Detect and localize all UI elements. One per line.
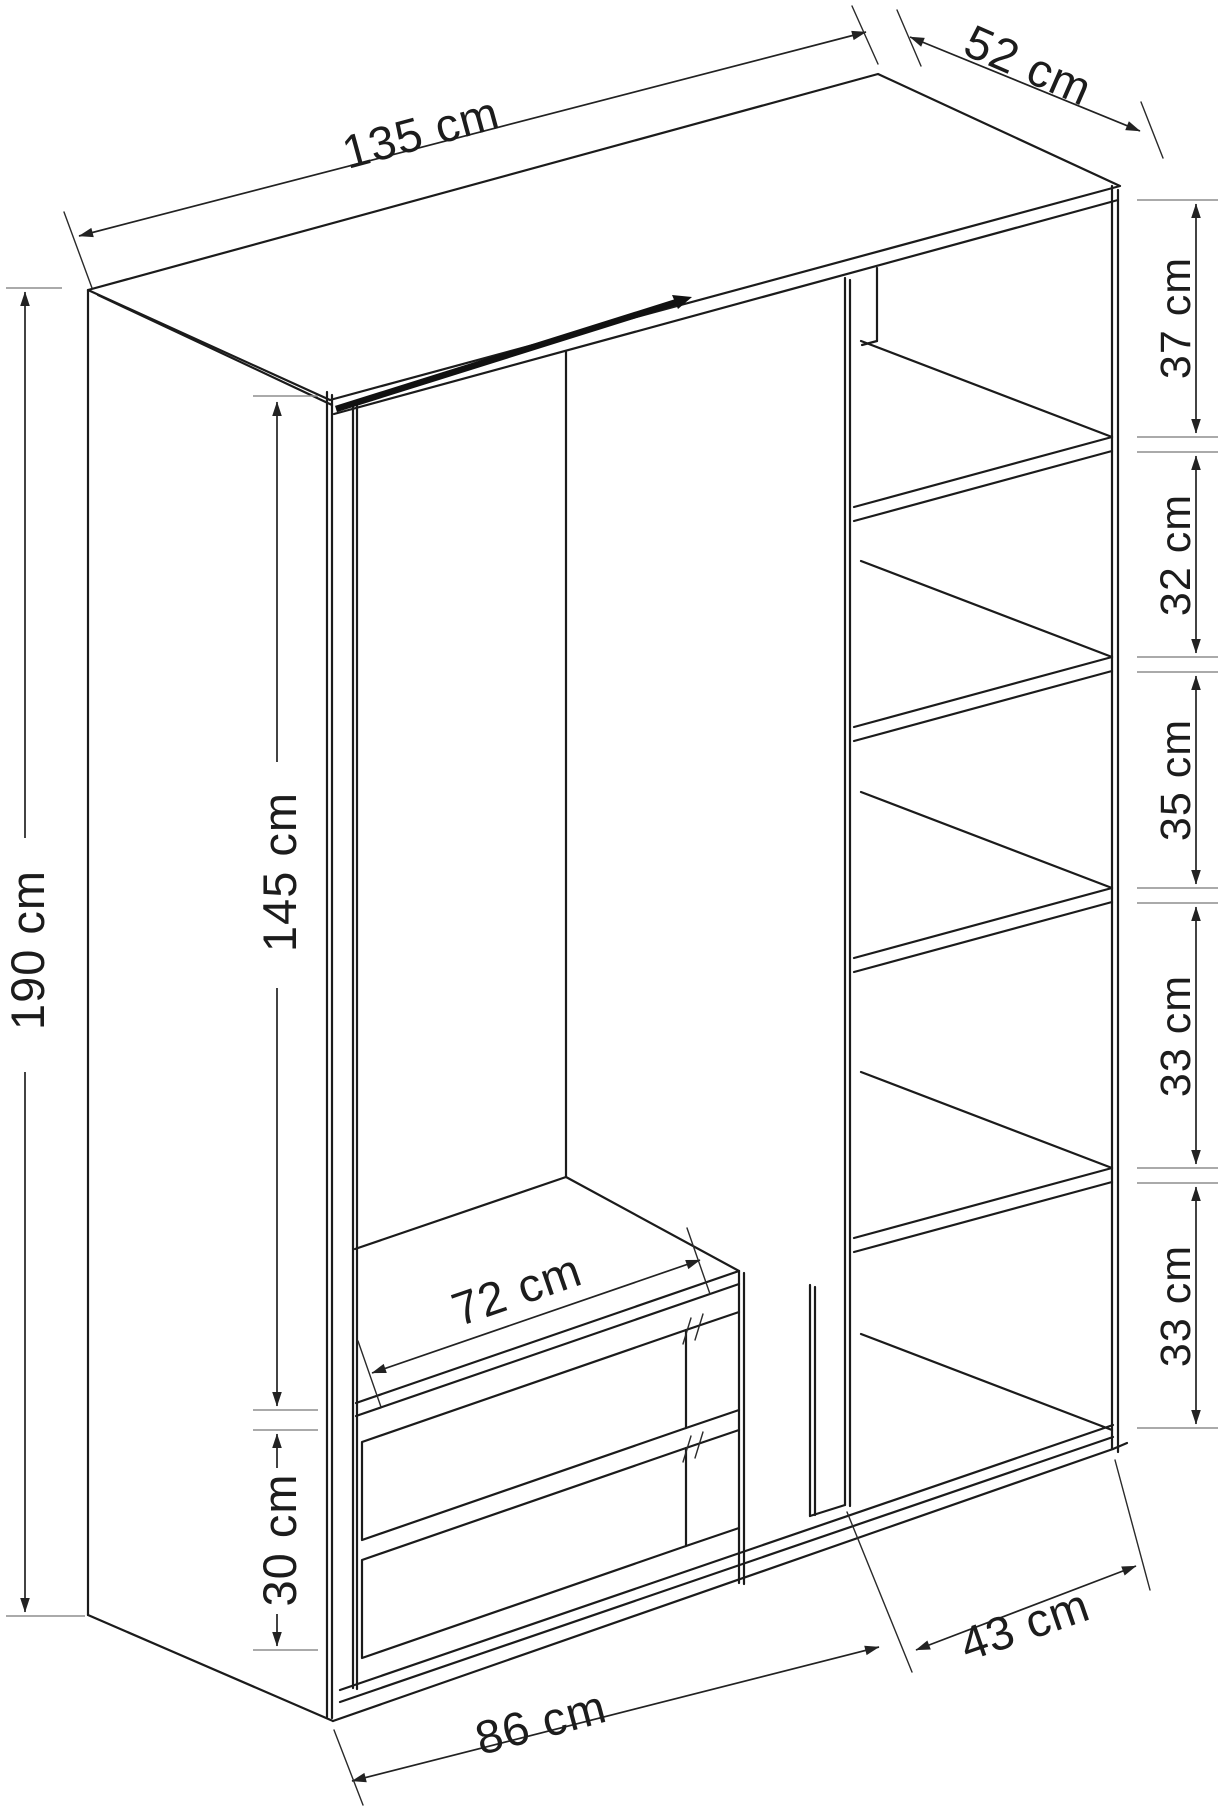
dim-height-label: 190 cm (1, 870, 54, 1030)
hanging-section-interior (355, 352, 739, 1271)
dim-hanging-height-label: 145 cm (253, 792, 306, 952)
dim-width (64, 6, 878, 288)
dim-shelf-gap-1-label: 37 cm (1152, 257, 1200, 379)
dim-width-label: 135 cm (336, 85, 504, 178)
wardrobe-dimension-diagram: 135 cm 52 cm 190 cm 145 cm 30 cm 37 cm 3… (0, 0, 1221, 1808)
dimension-labels: 135 cm 52 cm 190 cm 145 cm 30 cm 37 cm 3… (1, 14, 1200, 1765)
center-divider (810, 268, 877, 1516)
dim-drawer-height-label: 30 cm (253, 1474, 306, 1607)
base-plinth (333, 1425, 1113, 1721)
cabinet-structure (88, 74, 1127, 1721)
extension-lines (6, 200, 1218, 1650)
shelf-4 (854, 1072, 1112, 1252)
drawer-1 (362, 1312, 739, 1540)
dim-depth-label: 52 cm (957, 14, 1100, 116)
diagram-canvas: 135 cm 52 cm 190 cm 145 cm 30 cm 37 cm 3… (0, 0, 1221, 1808)
dim-shelf-gap-5-label: 33 cm (1152, 1245, 1200, 1367)
dim-hanging-width-label: 72 cm (445, 1243, 588, 1336)
hanging-rod (336, 295, 692, 409)
shelf-1 (854, 341, 1112, 521)
dim-shelf-gap-2-label: 32 cm (1152, 494, 1200, 616)
dim-shelf-width-label: 43 cm (953, 1578, 1096, 1671)
right-side-panel (1112, 186, 1127, 1452)
right-column-floor (861, 1334, 1112, 1430)
drawer-2 (362, 1430, 739, 1658)
shelf-2 (854, 561, 1112, 741)
left-side-panel (88, 290, 357, 1721)
dim-left-width (334, 1512, 912, 1805)
dimension-lines (25, 6, 1196, 1805)
dim-shelf-gap-4-label: 33 cm (1152, 975, 1200, 1097)
shelf-3 (854, 792, 1112, 972)
dim-shelf-gap-3-label: 35 cm (1152, 719, 1200, 841)
dim-left-width-label: 86 cm (470, 1679, 612, 1765)
top-panel (88, 74, 1120, 414)
